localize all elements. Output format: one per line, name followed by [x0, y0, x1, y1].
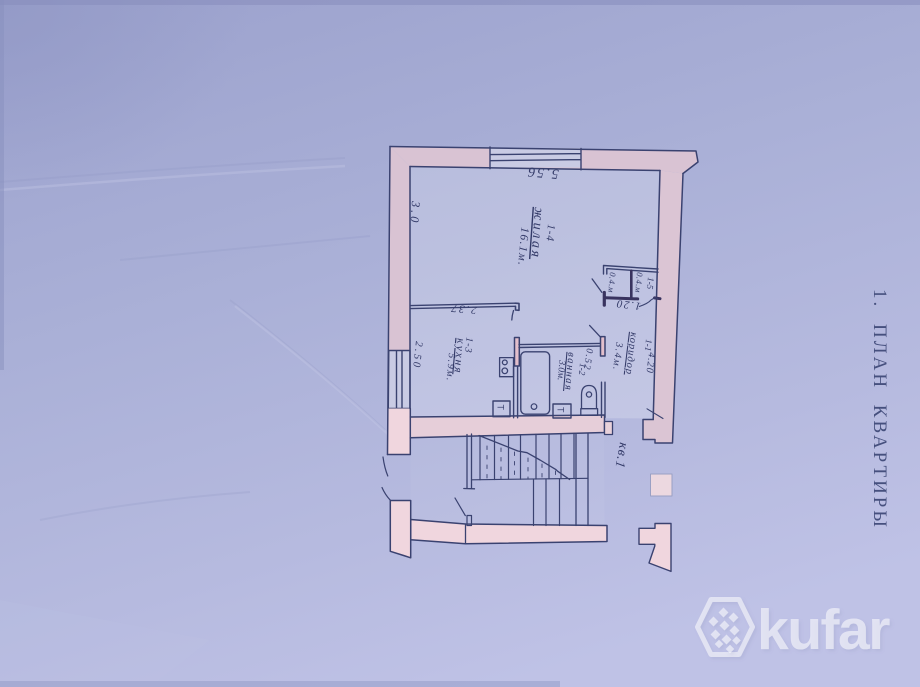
svg-text:1-5: 1-5 — [645, 277, 656, 290]
svg-text:0.4.м: 0.4.м — [606, 272, 618, 294]
svg-text:Т: Т — [556, 407, 566, 413]
svg-text:5.56: 5.56 — [526, 163, 560, 181]
svg-text:1-1: 1-1 — [643, 339, 654, 352]
svg-text:3.0м.: 3.0м. — [555, 359, 567, 381]
svg-text:3.0: 3.0 — [407, 200, 423, 226]
svg-text:2.37: 2.37 — [449, 302, 477, 316]
svg-text:1. ПЛАН КВАРТИРЫ: 1. ПЛАН КВАРТИРЫ — [869, 289, 890, 530]
svg-text:kufar: kufar — [757, 598, 890, 662]
svg-text:Т: Т — [496, 405, 506, 411]
svg-text:1-2: 1-2 — [577, 363, 588, 376]
svg-text:0.4.м: 0.4.м — [633, 272, 645, 294]
